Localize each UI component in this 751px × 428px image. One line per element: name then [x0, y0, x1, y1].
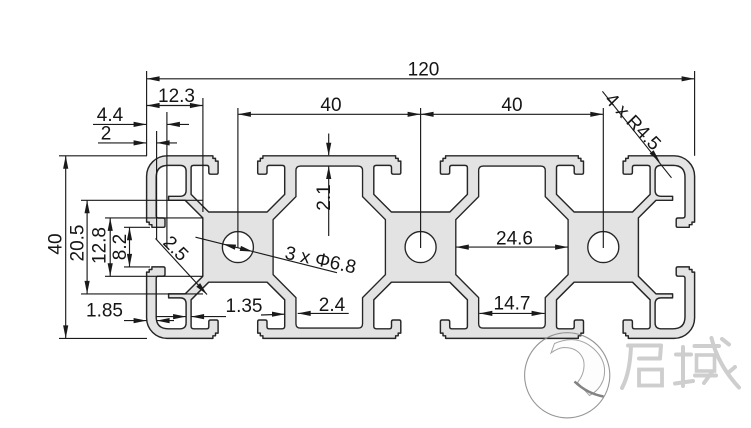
svg-text:1.35: 1.35 — [226, 296, 263, 317]
svg-text:24.6: 24.6 — [496, 229, 533, 250]
svg-text:1.85: 1.85 — [86, 301, 123, 322]
svg-text:4 x R4.5: 4 x R4.5 — [600, 89, 664, 154]
svg-text:2: 2 — [101, 124, 112, 145]
svg-text:8.2: 8.2 — [110, 234, 131, 260]
svg-text:12.8: 12.8 — [90, 227, 111, 264]
svg-text:12.3: 12.3 — [158, 86, 195, 107]
svg-text:120: 120 — [408, 60, 440, 81]
svg-text:2.1: 2.1 — [314, 184, 335, 210]
svg-text:20.5: 20.5 — [68, 225, 89, 262]
svg-text:2.4: 2.4 — [319, 295, 346, 316]
svg-text:40: 40 — [501, 95, 522, 116]
svg-text:40: 40 — [320, 95, 341, 116]
svg-text:40: 40 — [46, 233, 67, 254]
svg-text:2.5: 2.5 — [158, 232, 192, 266]
svg-text:14.7: 14.7 — [494, 294, 531, 315]
